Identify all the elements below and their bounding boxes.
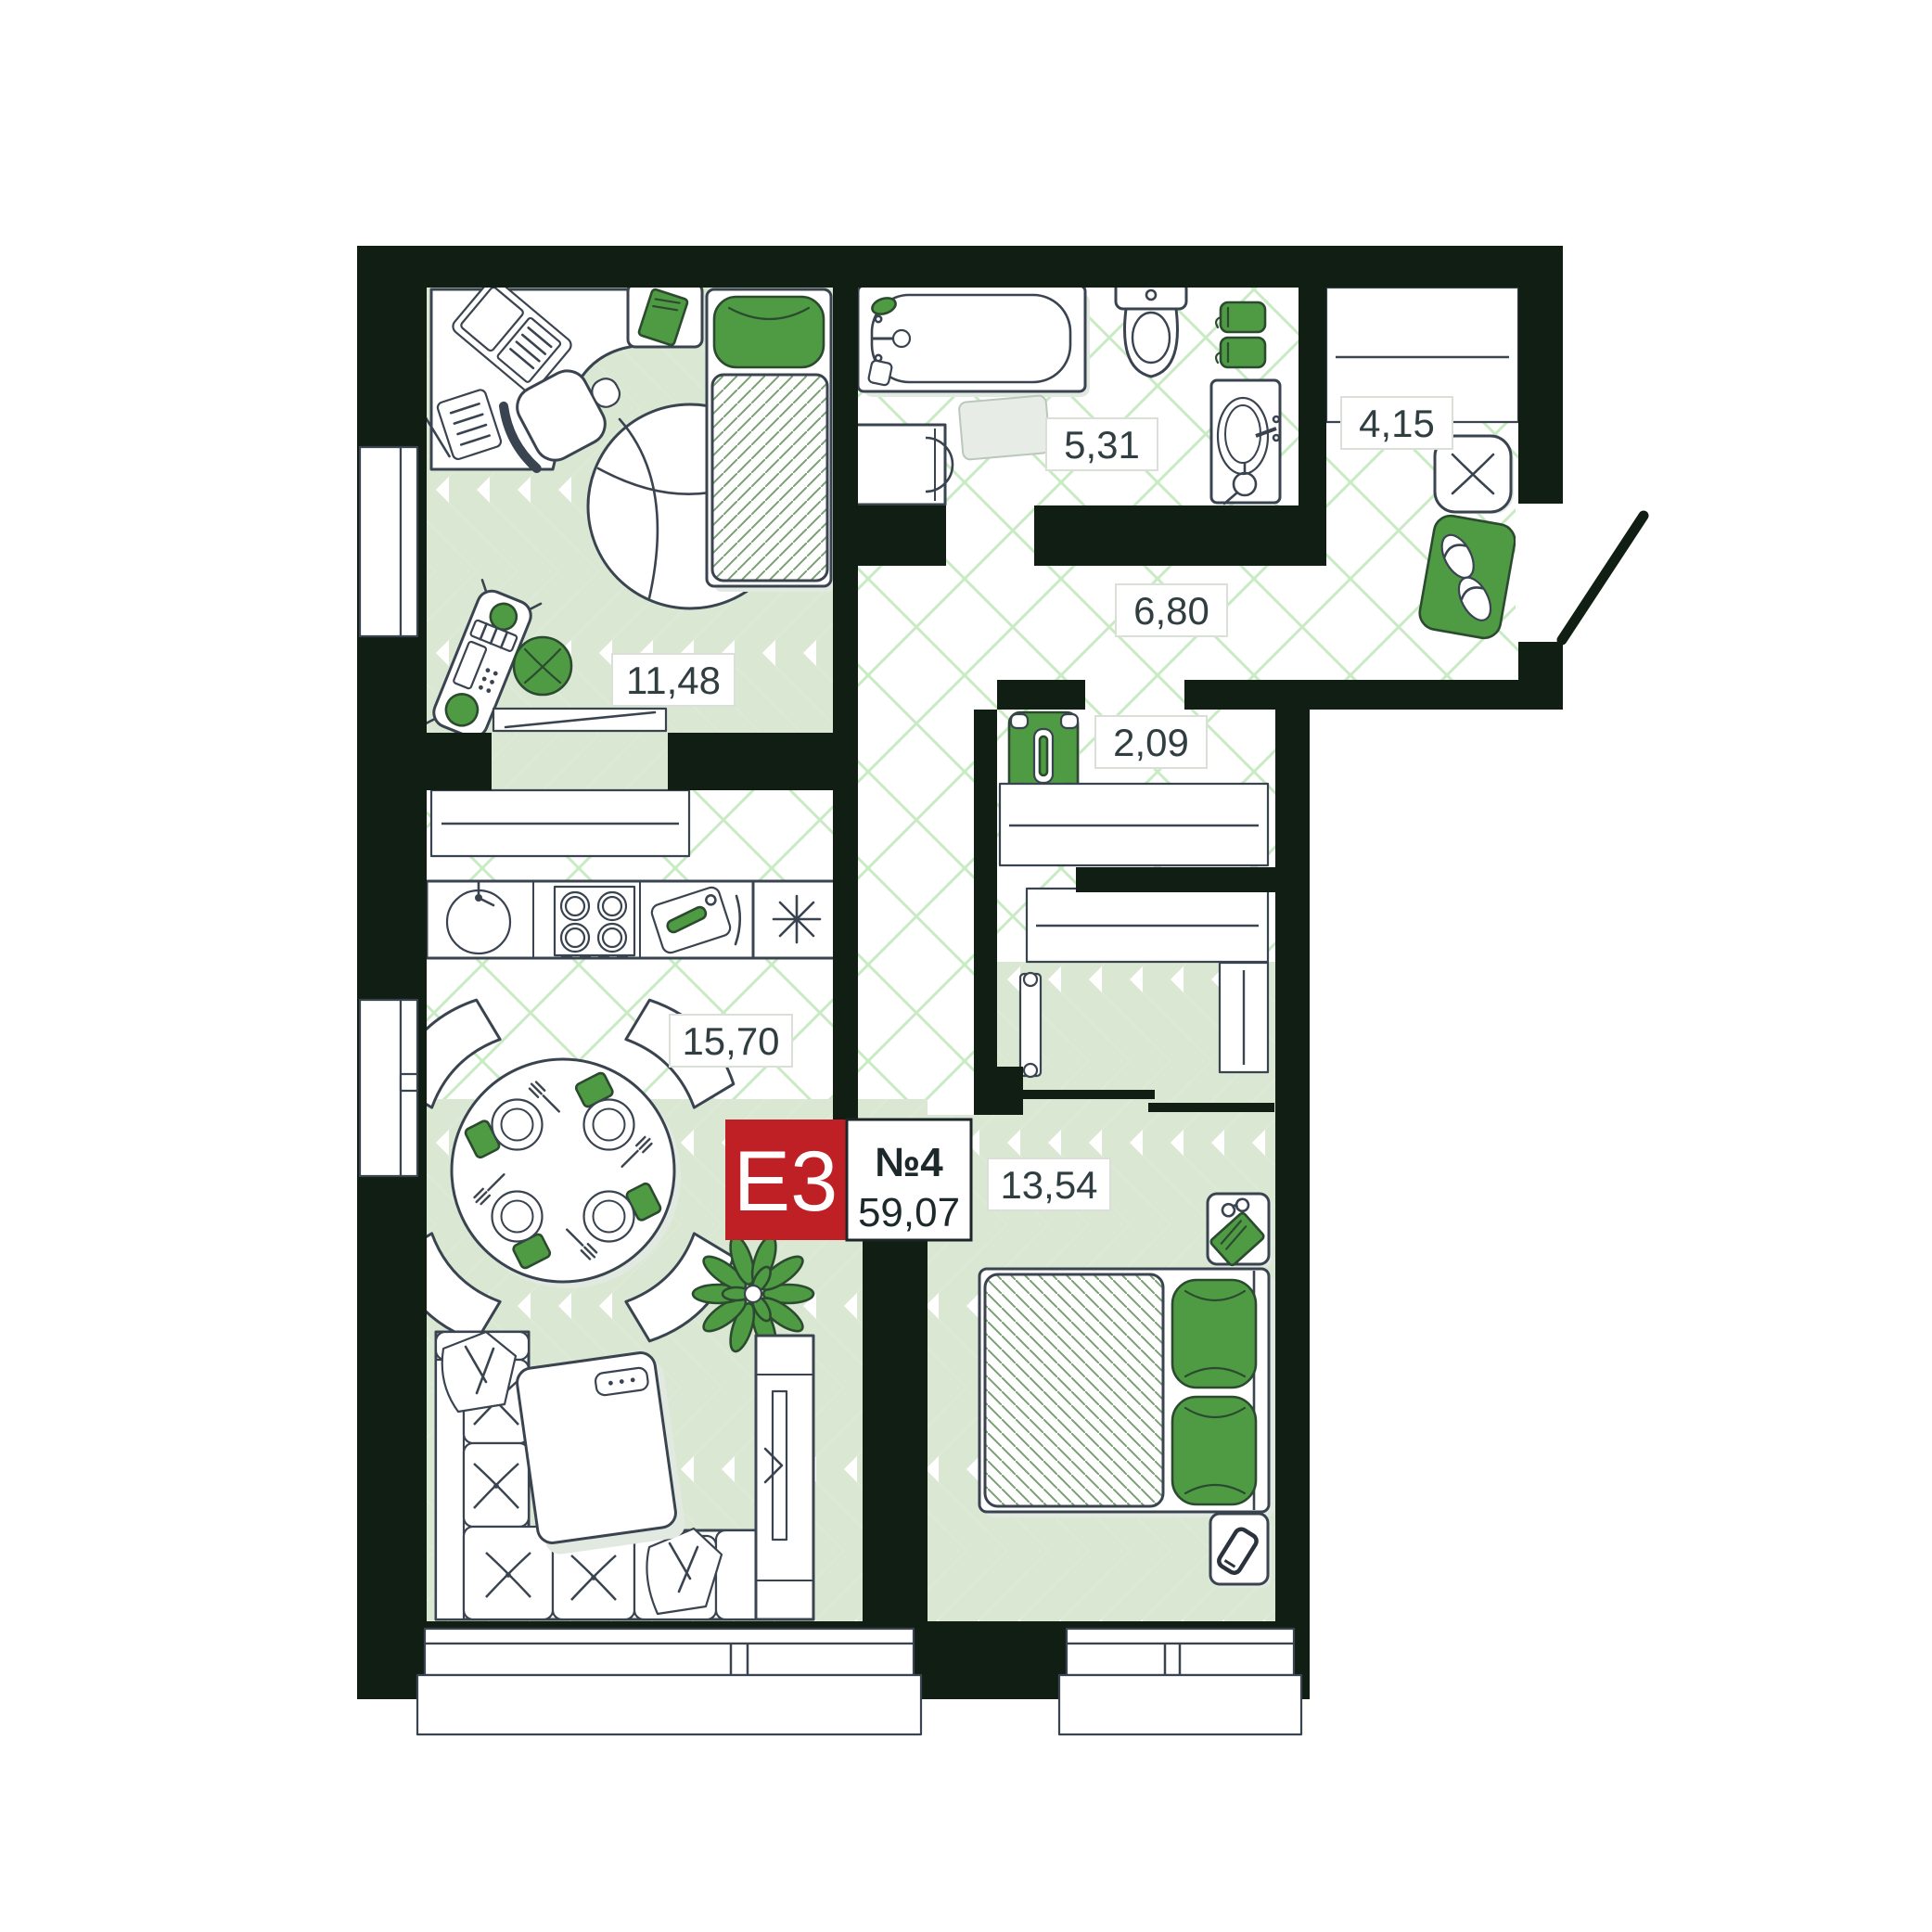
coffee-table <box>516 1350 687 1555</box>
wardrobe-rail-kitchen <box>431 790 689 856</box>
closet-rail-lower <box>1027 889 1268 962</box>
dishwasher <box>753 881 840 958</box>
area-value: 13,54 <box>1000 1163 1097 1207</box>
tv-icon <box>773 1391 787 1540</box>
floor-plan: 11,48 5,31 4,15 6,80 2,09 15,70 13,54 <box>0 0 1932 1932</box>
area-value: 6,80 <box>1133 589 1209 633</box>
duvet <box>985 1274 1163 1506</box>
pillow-icon <box>1172 1280 1256 1388</box>
area-value: 4,15 <box>1359 402 1435 445</box>
double-bed <box>979 1269 1274 1517</box>
door-bedroom-office <box>493 709 666 731</box>
tv-stand <box>756 1336 813 1619</box>
window-left-office <box>360 447 417 636</box>
closet-rail-side <box>1220 963 1268 1072</box>
entrance-door-leaf <box>1562 516 1644 640</box>
area-label-bathroom: 5,31 <box>1046 418 1158 470</box>
area-label-kitchen-living: 15,70 <box>670 1015 792 1067</box>
area-value: 5,31 <box>1064 423 1140 467</box>
living-room-furniture <box>436 1332 813 1619</box>
stove <box>555 887 634 957</box>
washing-machine <box>856 425 953 505</box>
door-leaf-bedroom <box>1020 973 1041 1077</box>
unit-type-label: E3 <box>734 1134 838 1229</box>
area-label-bedroom: 13,54 <box>988 1158 1110 1210</box>
area-value: 2,09 <box>1113 721 1189 764</box>
area-value: 15,70 <box>682 1019 779 1063</box>
pillow-icon <box>1172 1397 1256 1504</box>
unit-total-area: 59,07 <box>858 1190 960 1235</box>
floor-plan-page: 11,48 5,31 4,15 6,80 2,09 15,70 13,54 <box>0 0 1932 1932</box>
window-left-living <box>360 1000 417 1176</box>
pillow-icon <box>714 297 824 367</box>
unit-number: №4 <box>875 1140 943 1185</box>
window-bottom-living <box>417 1629 921 1734</box>
bath-mat <box>958 395 1050 460</box>
area-label-entry-wardrobe: 4,15 <box>1341 397 1452 449</box>
closet-rail-upper <box>1000 784 1268 865</box>
vanity-sink <box>1211 380 1280 504</box>
nightstand <box>1210 1514 1272 1588</box>
nightstand <box>1208 1194 1273 1268</box>
duvet <box>712 375 827 581</box>
area-label-closet: 2,09 <box>1095 716 1207 768</box>
unit-badge: E3 №4 59,07 <box>725 1120 971 1240</box>
area-label-bedroom-office: 11,48 <box>612 654 735 706</box>
area-label-hallway: 6,80 <box>1116 584 1227 636</box>
bathtub <box>858 286 1085 391</box>
window-bottom-bedroom <box>1059 1629 1301 1734</box>
area-value: 11,48 <box>626 659 721 702</box>
entrance-door <box>1516 504 1644 642</box>
